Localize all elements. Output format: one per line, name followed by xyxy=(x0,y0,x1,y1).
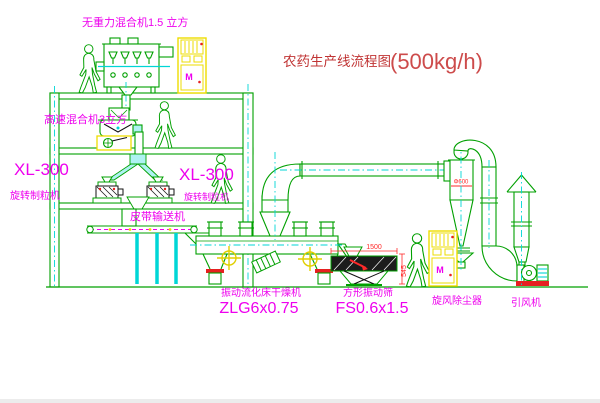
conveyor-legs xyxy=(137,233,176,284)
label-screen-model: FS0.6x1.5 xyxy=(336,300,409,317)
exhaust-duct xyxy=(260,161,446,236)
window-bottom-edge xyxy=(0,399,600,403)
induced-draft-fan-machine xyxy=(516,265,549,286)
person-second-floor xyxy=(155,102,175,149)
label-dryer-name: 振动流化床干燥机 xyxy=(221,286,301,299)
cabinet-motor-symbol: M xyxy=(436,265,444,275)
control-cabinet-top-floor: M xyxy=(178,38,206,93)
label-granulator-left-name: 旋转制粒机 xyxy=(10,189,60,202)
label-induced-draft-fan: 引风机 xyxy=(511,296,541,309)
label-screen-name: 方形振动筛 xyxy=(343,286,393,299)
belt-conveyor-machine xyxy=(87,226,197,284)
person-ground-floor xyxy=(406,234,429,287)
cabinet-motor-symbol: M xyxy=(185,72,193,82)
label-granulator-left-model: XL-300 xyxy=(14,160,69,179)
label-granulator-right-name: 旋转制粒机 xyxy=(184,191,229,202)
label-belt-conveyor: 皮带输送机 xyxy=(130,209,185,223)
drawing-title-zh: 农药生产线流程图 xyxy=(283,54,391,69)
label-cyclone: 旋风除尘器 xyxy=(432,294,482,307)
label-gravity-mixer: 无重力混合机1.5 立方 xyxy=(82,15,188,29)
cad-process-flow-screenshot: 1500 545 Φ600 xyxy=(0,0,600,403)
label-granulator-right-model: XL-300 xyxy=(179,165,234,184)
label-high-speed-mixer: 高速混合机3立方 xyxy=(44,112,127,126)
y-splitter-chute xyxy=(107,154,162,180)
drawing-title-capacity: (500kg/h) xyxy=(390,49,483,74)
process-flow-drawing: 1500 545 Φ600 xyxy=(0,0,600,403)
square-vibrating-screen-machine xyxy=(331,247,397,285)
granulator-right-machine xyxy=(144,177,174,203)
control-cabinet-ground-floor: M xyxy=(429,231,457,286)
screen-length-dim: 1500 xyxy=(366,244,382,251)
granulator-left-machine xyxy=(93,177,123,203)
label-dryer-model: ZLG6x0.75 xyxy=(219,300,298,317)
